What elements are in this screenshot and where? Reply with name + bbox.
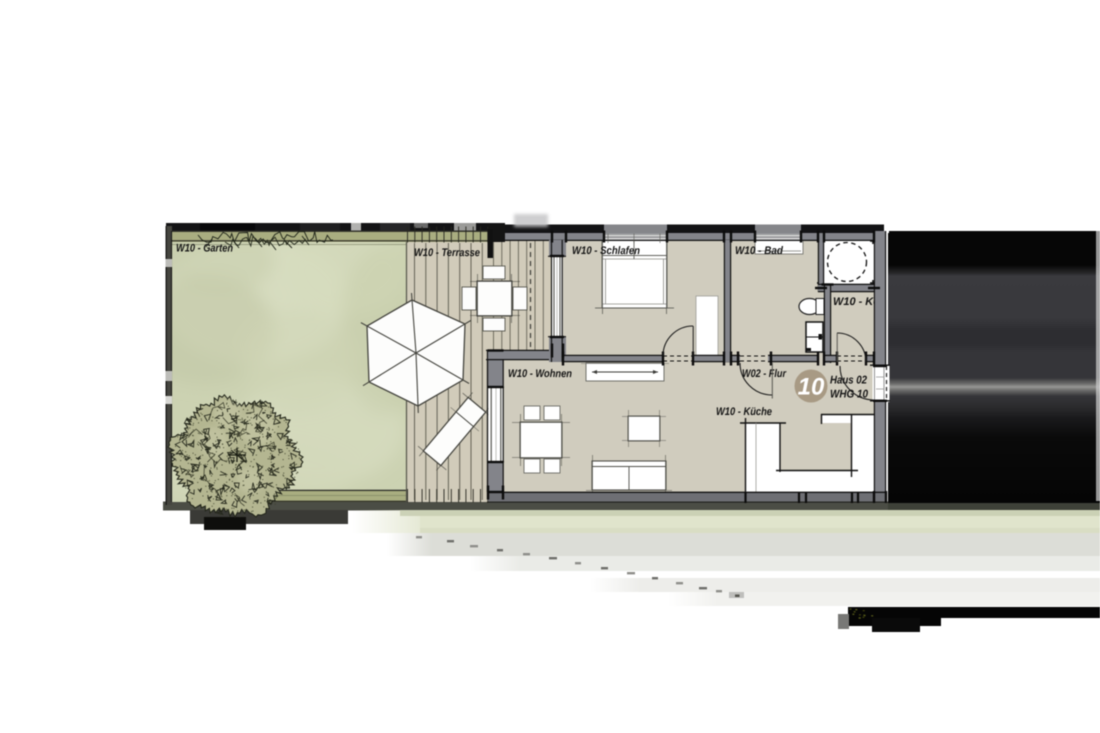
svg-text:W10 - Schlafen: W10 - Schlafen: [572, 245, 640, 257]
svg-text:W10 - Terrasse: W10 - Terrasse: [414, 247, 480, 259]
svg-text:W10 - Garten: W10 - Garten: [176, 243, 233, 255]
svg-text:W10 - Wohnen: W10 - Wohnen: [508, 368, 572, 380]
svg-text:10: 10: [798, 373, 825, 400]
svg-text:WHG 10: WHG 10: [830, 389, 869, 401]
svg-text:W10 - Küche: W10 - Küche: [716, 406, 772, 418]
svg-text:Haus 02: Haus 02: [830, 375, 868, 387]
svg-text:W02 - Flur: W02 - Flur: [742, 368, 787, 380]
svg-text:W10 - Bad: W10 - Bad: [735, 245, 783, 257]
